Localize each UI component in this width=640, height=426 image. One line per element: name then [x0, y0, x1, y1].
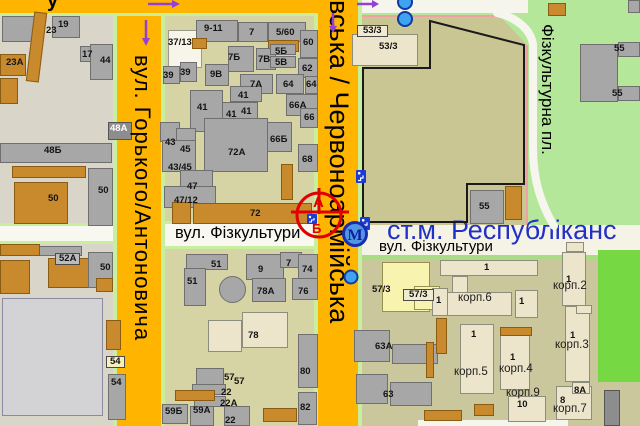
svg-text:М: М	[347, 227, 362, 244]
metro-entrance-circle[interactable]	[398, 0, 412, 9]
one-way-arrow-down	[142, 20, 150, 46]
metro-entrance-circle[interactable]	[398, 12, 412, 26]
stadium-outline	[363, 21, 524, 222]
marker-side-a: А	[313, 194, 324, 211]
billboard-marker[interactable]: А Б	[291, 188, 349, 237]
metro-icon[interactable]: М	[344, 223, 367, 246]
underpass-icon	[356, 170, 366, 183]
one-way-arrow-right	[357, 0, 379, 8]
fizkulturna-road	[497, 13, 554, 226]
map-canvas[interactable]: 231923А174448А48Б505052А50545437/139-117…	[0, 0, 640, 426]
marker-side-b: Б	[312, 221, 321, 236]
one-way-arrow-right	[148, 0, 180, 8]
one-way-arrow-down	[329, 13, 337, 33]
metro-entrance-circle[interactable]	[345, 271, 358, 284]
map-decorations: А Б М	[0, 0, 640, 426]
